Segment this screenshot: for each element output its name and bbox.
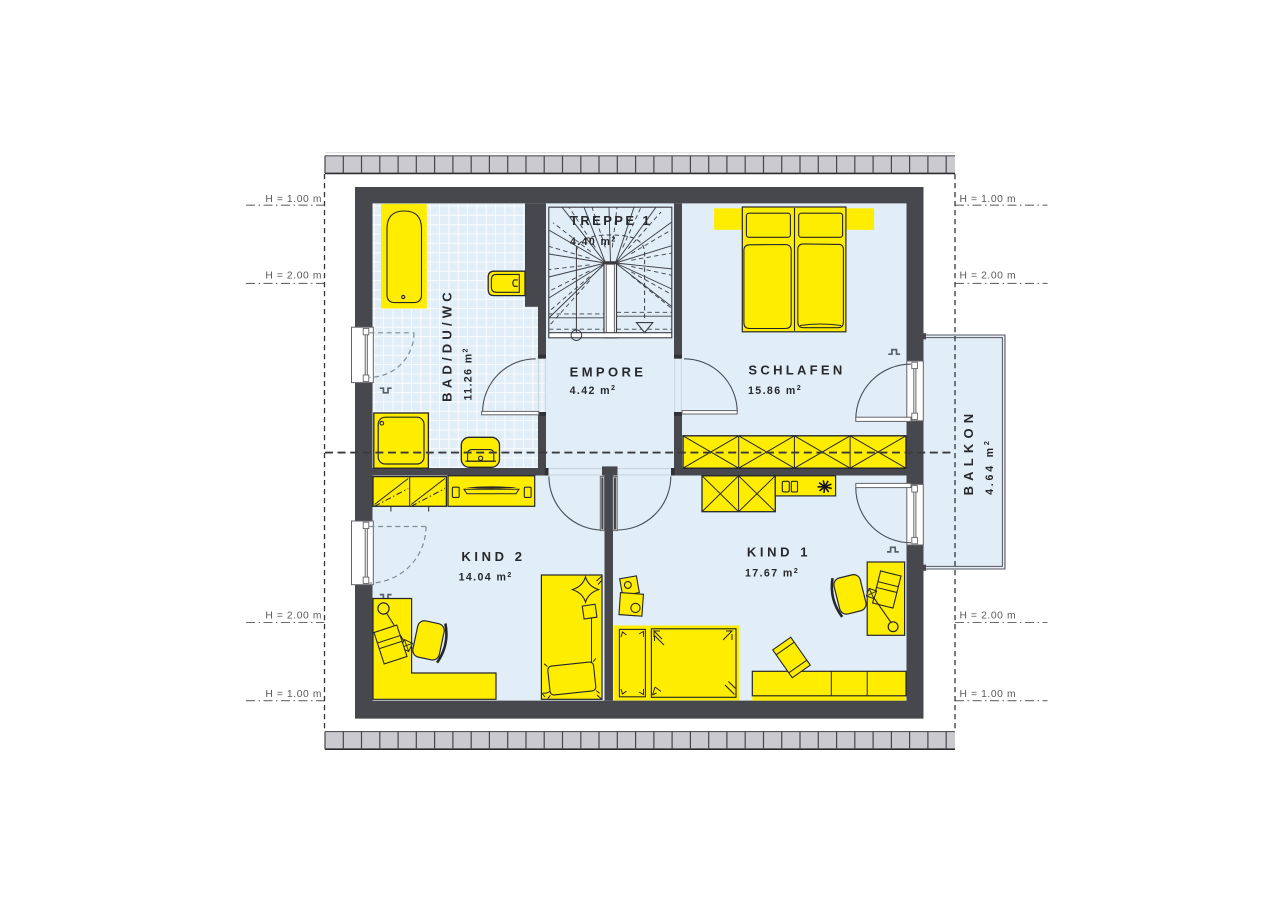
svg-text:H = 2.00 m: H = 2.00 m	[265, 611, 322, 622]
svg-text:11.26 m2: 11.26 m2	[461, 348, 475, 400]
svg-text:14.04 m2: 14.04 m2	[459, 570, 512, 584]
svg-text:4.40 m2: 4.40 m2	[570, 234, 615, 248]
svg-text:H = 1.00 m: H = 1.00 m	[960, 194, 1017, 205]
svg-text:H = 1.00 m: H = 1.00 m	[960, 689, 1017, 700]
svg-text:H = 1.00 m: H = 1.00 m	[265, 194, 322, 205]
svg-text:H = 2.00 m: H = 2.00 m	[960, 611, 1017, 622]
svg-text:SCHLAFEN: SCHLAFEN	[748, 362, 845, 377]
svg-text:BAD/DU/WC: BAD/DU/WC	[440, 288, 455, 402]
svg-text:EMPORE: EMPORE	[570, 364, 647, 379]
svg-text:17.67 m2: 17.67 m2	[745, 566, 798, 580]
svg-text:H = 2.00 m: H = 2.00 m	[265, 270, 322, 281]
svg-text:BALKON: BALKON	[961, 409, 976, 496]
svg-text:4.42 m2: 4.42 m2	[570, 383, 615, 397]
svg-text:H = 1.00 m: H = 1.00 m	[265, 689, 322, 700]
svg-text:4.64 m2: 4.64 m2	[982, 441, 996, 495]
svg-text:H = 2.00 m: H = 2.00 m	[960, 270, 1017, 281]
svg-text:15.86 m2: 15.86 m2	[748, 383, 801, 397]
svg-text:KIND 2: KIND 2	[461, 549, 525, 564]
svg-text:KIND 1: KIND 1	[747, 544, 811, 559]
svg-text:TREPPE 1: TREPPE 1	[570, 213, 652, 228]
